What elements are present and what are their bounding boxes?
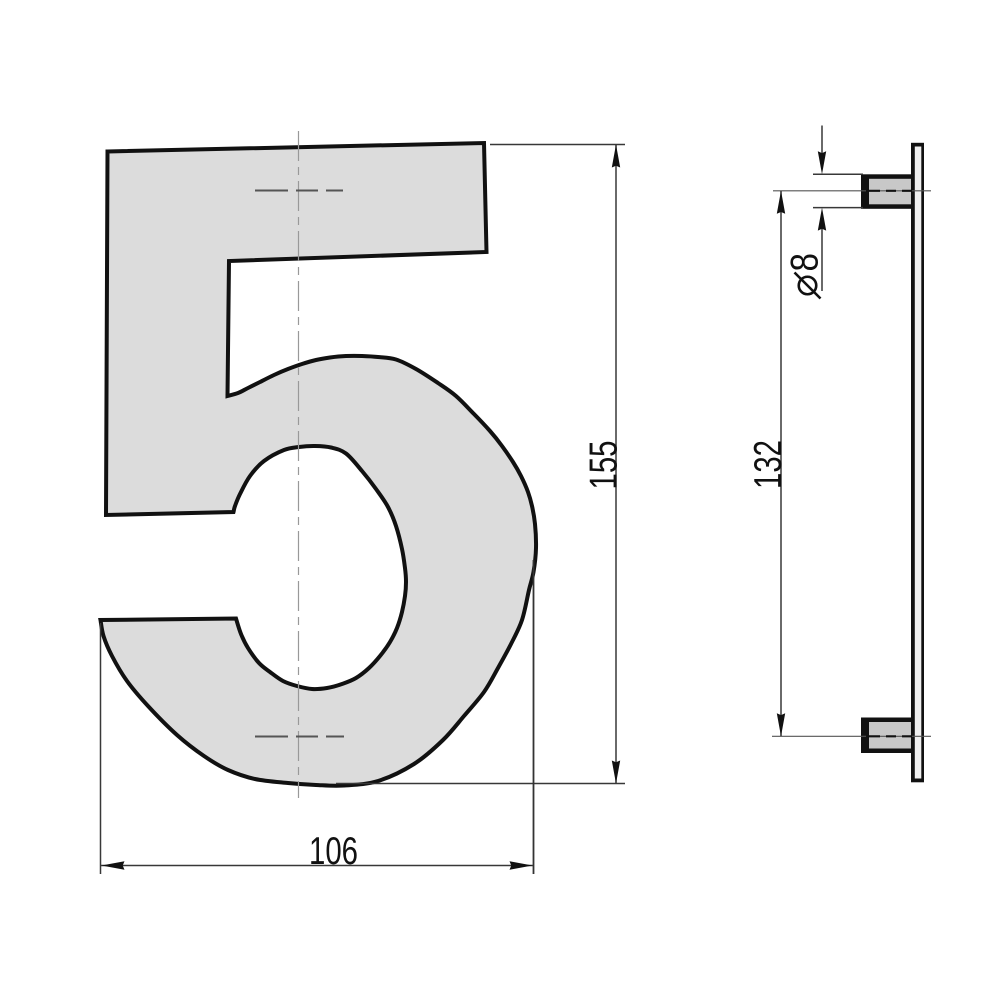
svg-text:132: 132 <box>747 440 790 489</box>
svg-text:106: 106 <box>309 830 358 873</box>
svg-text:8: 8 <box>784 253 827 272</box>
svg-text:155: 155 <box>583 441 626 490</box>
